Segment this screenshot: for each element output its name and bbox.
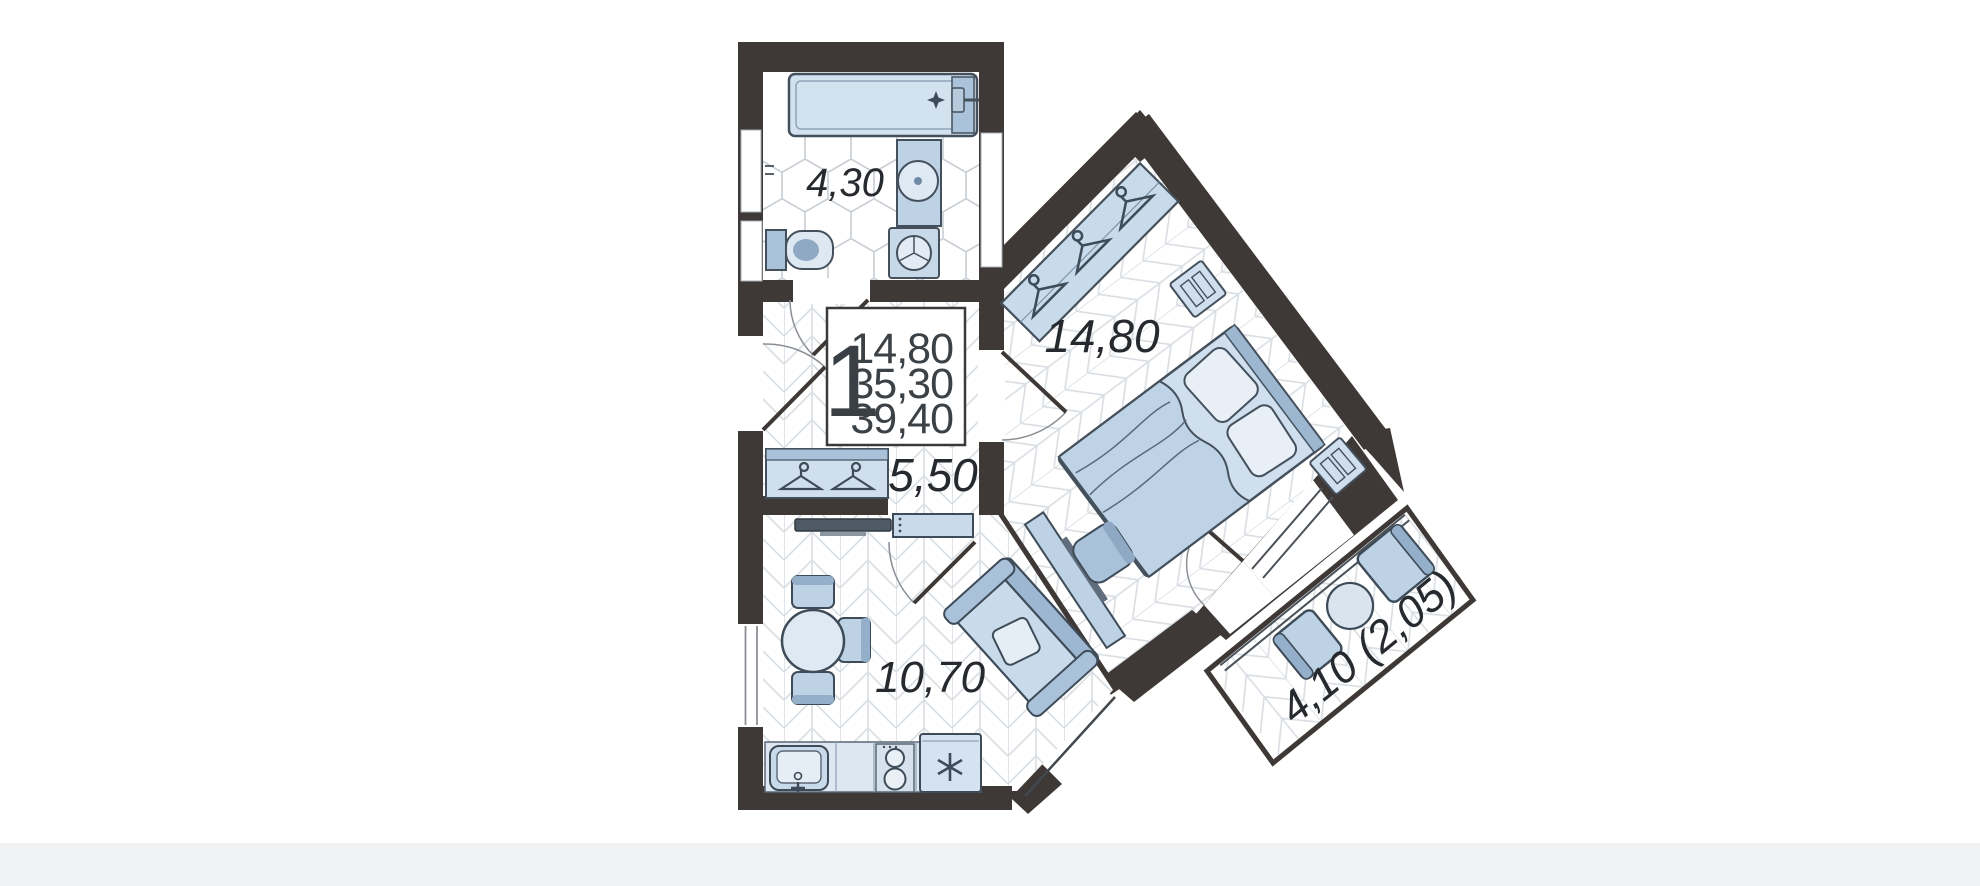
bathroom-area-label: 4,30: [806, 161, 884, 205]
living-room-left-window-icon: [738, 624, 763, 727]
bathroom-sink: [897, 140, 941, 226]
dining-chair-bottom: [792, 672, 834, 704]
hallway-closet: [766, 449, 888, 498]
living-kitchen-area-label: 10,70: [875, 653, 986, 702]
floor-plan-canvas: 4,10 (2,05): [0, 0, 1980, 886]
hallway-area-label: 5,50: [888, 449, 978, 501]
page-bottom-band: [0, 843, 1980, 886]
entrance-door-opening: [738, 336, 763, 431]
floor-plan-page: 4,10 (2,05): [0, 0, 1980, 886]
bedroom-area-label: 14,80: [1044, 310, 1160, 362]
bathroom-door-opening: [793, 278, 870, 304]
unit-total-area: 39,40: [850, 395, 953, 443]
kitchen-counter: [765, 734, 981, 792]
dining-chair-top: [792, 576, 834, 608]
bedroom-door-opening: [978, 350, 1005, 442]
hall-cabinet: [893, 514, 973, 537]
kitchen-sink: [770, 746, 828, 792]
dining-table: [782, 610, 844, 672]
bathtub: [789, 74, 977, 136]
toilet: [766, 230, 833, 270]
fridge: [920, 734, 981, 792]
shaft-niche-right: [981, 133, 1002, 267]
washing-machine: [889, 228, 939, 278]
wall-niche-top: [741, 130, 761, 212]
wall-niche-toilet: [741, 221, 762, 281]
stove: [876, 744, 914, 792]
unit-info-box: 1 14,80 35,30 39,40: [824, 308, 965, 445]
